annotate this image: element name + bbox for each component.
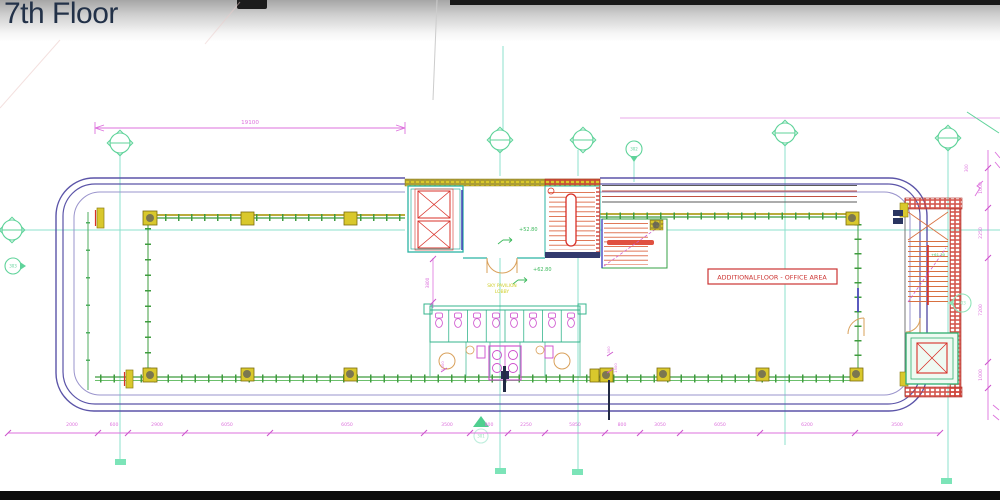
grid-lines [0,46,1000,484]
dim-wc-b: 1500 [613,363,618,373]
dim-b13: 3500 [891,422,903,428]
dim-b0: 2000 [66,422,78,428]
dim-b1: 600 [110,422,119,428]
dim-b12: 6200 [801,422,813,428]
pin-bottom-label: 301 [477,434,485,439]
pavilion-label-2: LOBBY [495,289,510,295]
office-label-box: ADDITIONALFLOOR - OFFICE AREA [708,269,837,284]
floor-plan: +52.80 +62.80 SKY PAVILION LOBBY [0,0,1000,500]
pin-top-label: 302 [630,147,638,152]
dim-b7: 2250 [520,422,532,428]
level-lower: +62.80 [533,267,552,273]
pavilion-label-1: SKY PAVILION [487,283,516,289]
dim-b8: 5850 [569,422,581,428]
pin-marker-bottom: 301 [473,416,489,443]
dim-b3: 6050 [221,422,233,428]
dim-b6: 800 [485,422,494,428]
dim-top-label: 19100 [241,120,259,126]
screenshot-stage: 7th Floor [0,0,1000,500]
bottom-black-bar [0,491,1000,500]
dim-b5: 3500 [441,422,453,428]
dim-r1: 2250 [978,227,984,239]
office-label: ADDITIONALFLOOR - OFFICE AREA [717,274,827,282]
mid-stair [602,219,667,268]
dim-right-small: 300 [964,164,969,172]
core: +52.80 +62.80 SKY PAVILION LOBBY [405,176,600,295]
level-stair: +61.30 [931,252,946,257]
photo-artifacts [0,0,437,108]
pin-left-label: 303 [9,264,17,269]
pin-marker-top: 302 [626,141,642,162]
pin-stair-label: 303 [958,301,966,306]
level-upper: +52.80 [519,227,538,233]
dim-r2: 7200 [978,304,984,316]
pin-marker-left: 303 [5,258,26,274]
toilet-block [424,304,609,420]
dim-b2: 2900 [151,422,163,428]
dim-b9: 800 [618,422,627,428]
dim-r3: 1000 [978,369,984,381]
escalator-lines [602,186,857,203]
dim-b10: 3050 [654,422,666,428]
dim-b4: 6050 [341,422,353,428]
dim-b11: 6050 [714,422,726,428]
dimensions: 19100 2000 600 2900 6050 6050 3500 8 [5,112,1000,436]
dim-core-label: 3800 [425,277,430,288]
dim-wc-a: 300 [606,346,611,354]
